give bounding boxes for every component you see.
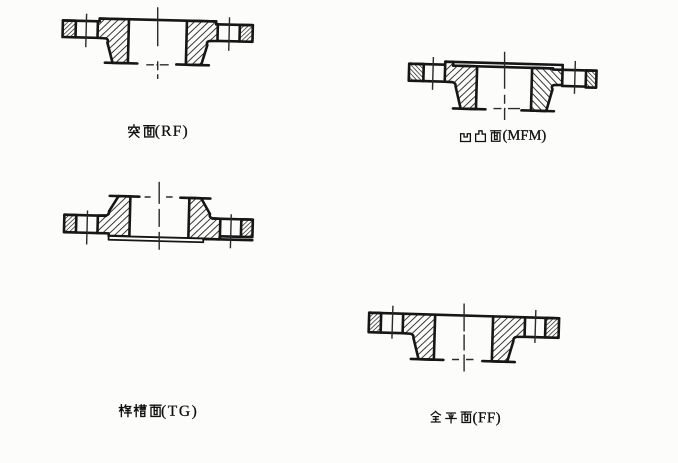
svg-text:(RF): (RF) [155,123,189,140]
svg-text:(FF): (FF) [472,410,501,426]
svg-text:(TG): (TG) [161,403,198,420]
svg-text:(MFM): (MFM) [502,128,546,144]
